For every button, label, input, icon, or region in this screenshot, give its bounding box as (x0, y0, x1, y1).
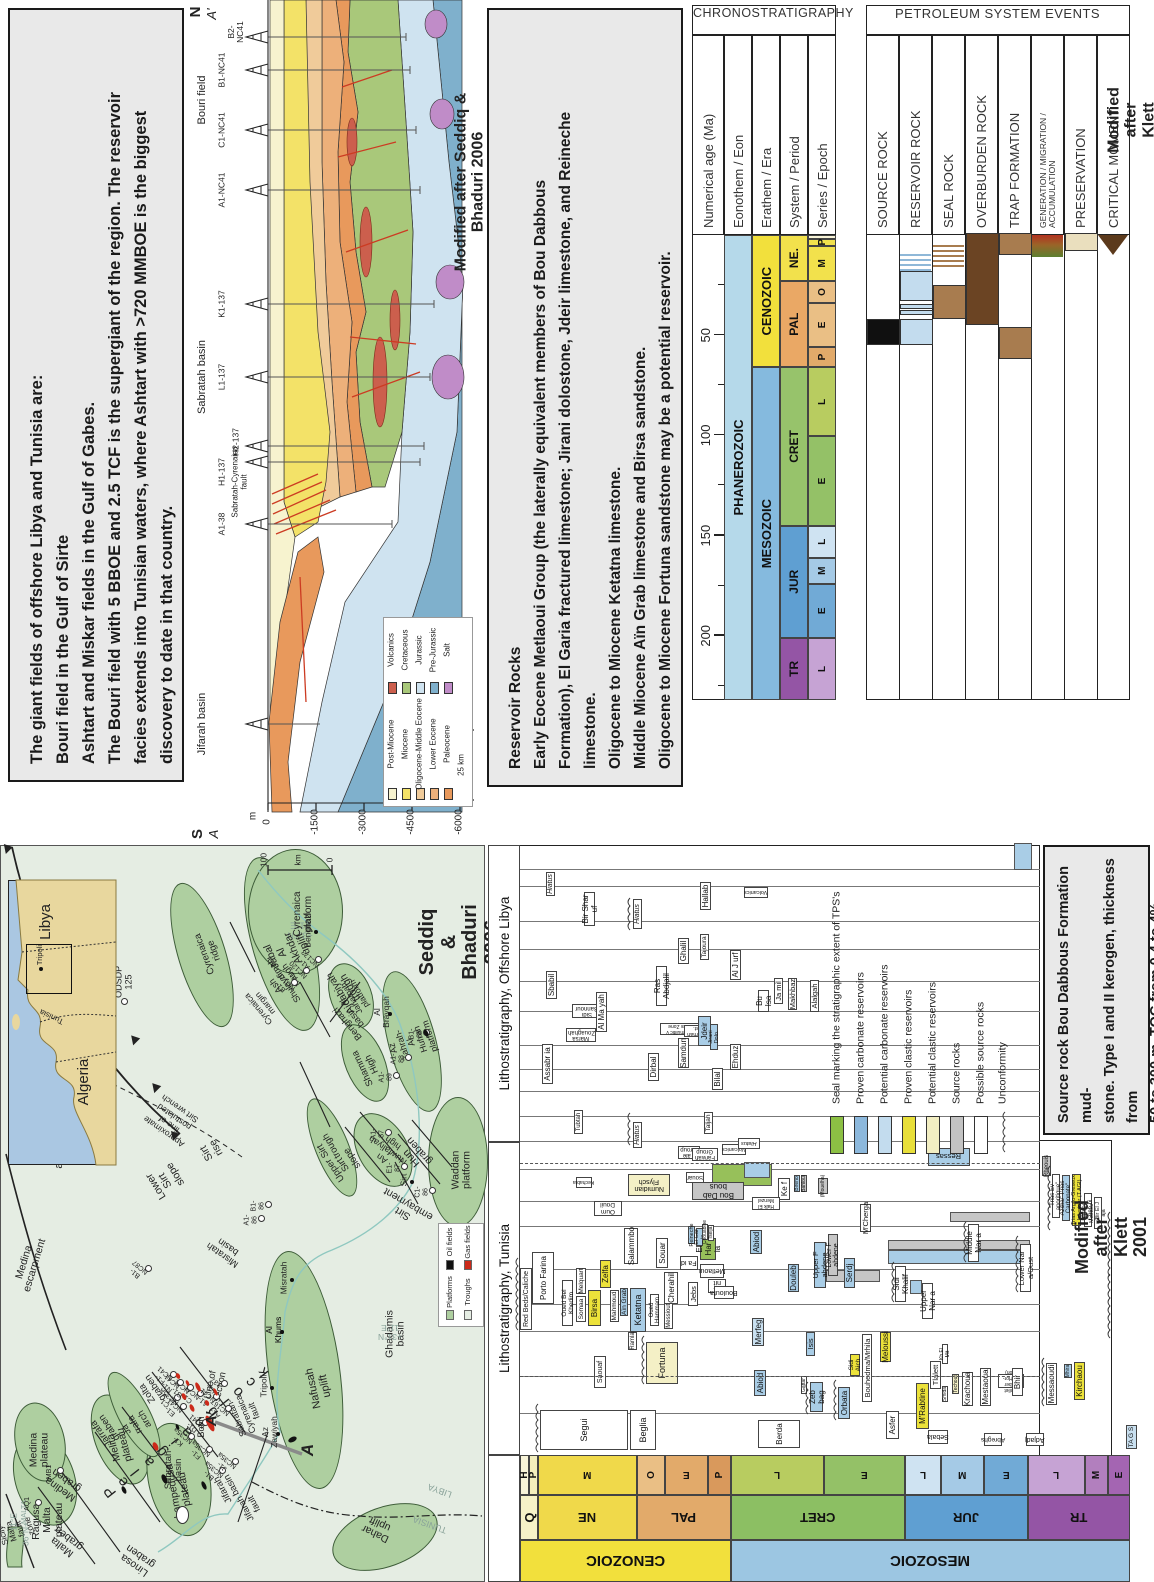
south-label: S (190, 829, 206, 839)
chrono-band: MESOZOIC (752, 367, 780, 700)
chrono-band: O (808, 281, 836, 303)
well-marker (35, 1499, 42, 1506)
event-row-label: SEAL ROCK (932, 35, 965, 235)
legend-label: Miocene (402, 729, 411, 759)
section-A-label: A (207, 830, 221, 839)
event-row-label: SOURCE ROCK (866, 35, 899, 235)
chrono-band: E (808, 436, 836, 525)
litho-legend-chip (950, 1116, 964, 1154)
event-bar (933, 285, 966, 319)
north-label: N (188, 7, 204, 18)
age-minor-tick (718, 384, 724, 385)
litho-legend-chip (854, 1116, 868, 1154)
event-bar-stripes (933, 245, 964, 267)
basin-label: Bouri field (197, 76, 209, 125)
text-line: Formation), El Garia fractured limestone… (553, 26, 578, 769)
event-bar-gradient (1032, 235, 1063, 257)
row-line (1031, 235, 1032, 700)
well-marker (429, 1187, 436, 1194)
age-tick-label: 50 (699, 328, 713, 342)
map-legend-chip (464, 1260, 472, 1270)
city-dot (270, 1386, 274, 1390)
map-label: Waddan platform (451, 1151, 474, 1190)
city-label: Tripoli (259, 1375, 268, 1398)
litho-legend-label: Potential clastic reservoirs (927, 982, 938, 1104)
event-bar (966, 233, 999, 325)
map-well-label: A1-87 (370, 1129, 385, 1140)
dsdp-site-marker (121, 998, 128, 1005)
critical-moment-triangle (1098, 235, 1128, 255)
litho-legend-label: Unconformity (997, 1042, 1008, 1104)
row-line (1097, 235, 1098, 700)
events-banner: PETROLEUM SYSTEM EVENTS (866, 5, 1130, 35)
text-line: Middle Miocene Aïn Grab limestone and Bi… (628, 26, 653, 769)
well-marker (57, 1467, 64, 1474)
age-tick (714, 434, 724, 436)
map-well-label: E1-87 (386, 1163, 401, 1174)
litho-legend-chip (830, 1116, 844, 1154)
legend-label: Jurassic (416, 635, 425, 664)
city-label: Misratah (279, 1262, 288, 1295)
well-label: C1-NC41 (217, 112, 226, 147)
city-label: Sirt (399, 1174, 408, 1187)
well-label: A1-NC41 (217, 173, 226, 208)
basin-label: Sabratah basin (197, 340, 209, 414)
event-bar-stripes (900, 253, 931, 271)
chrono-band: CENOZOIC (752, 235, 780, 367)
event-row-label: GENERATION / MIGRATION / ACCUMULATION (1031, 35, 1064, 235)
chrono-band: L (808, 638, 836, 700)
map-well-label: A1-86 (243, 1215, 258, 1226)
legend-label: Pre-Jurassic (430, 628, 439, 672)
legend-label: Cretaceous (402, 630, 411, 671)
map-legend-chip (446, 1310, 454, 1320)
depth-tick-label: -4500 (407, 809, 418, 835)
event-bar (900, 271, 933, 301)
well-label: B2-NC41 (227, 16, 245, 48)
litho-legend-label: Source rocks (951, 1043, 962, 1104)
legend-chip (430, 682, 439, 694)
litho-legend-label: Seal marking the stratigraphic extent of… (831, 892, 842, 1105)
chrono-row-label: Series / Epoch (808, 35, 836, 235)
map-label: Medina plateau (29, 1433, 52, 1467)
map-well-label: B1-86 (250, 1201, 265, 1212)
text-line: Early Eocene Metlaoui Group (the lateral… (528, 26, 553, 769)
chrono-band: E (808, 303, 836, 347)
chrono-band: M (808, 558, 836, 584)
reservoir-rocks-textbox: Reservoir RocksEarly Eocene Metlaoui Gro… (487, 8, 683, 787)
city-label: Benghazi (303, 912, 312, 947)
text-line: stone. Type I and II kerogen, thickness … (1099, 857, 1145, 1123)
chrono-band: CRET (780, 367, 808, 525)
scale-unit: km (293, 854, 302, 865)
legend-label: Volcanics (388, 633, 397, 667)
event-row-label: OVERBURDEN ROCK (965, 35, 998, 235)
text-line: 50 to 300 m. TOC from 0.4 to 4%, (1145, 857, 1154, 1123)
well-marker (258, 1215, 265, 1222)
map-well-label: A1-89 (378, 1072, 393, 1083)
legend-label: Salt (444, 643, 453, 657)
map-well-label: A1-88 (390, 1054, 405, 1065)
depth-unit: m (249, 812, 260, 820)
city-dot (290, 1278, 294, 1282)
chrono-row-label: Numerical age (Ma) (692, 35, 724, 235)
age-tick-label: 200 (699, 625, 713, 647)
legend-label: Post-Miocene (388, 720, 397, 769)
reservoir-title: Reservoir Rocks (503, 26, 528, 769)
age-tick (714, 634, 724, 636)
depth-tick-label: -3000 (359, 809, 370, 835)
island-shape (176, 1506, 189, 1524)
chrono-band: PHANEROZOIC (724, 235, 752, 700)
basin-label: Jifarah basin (197, 693, 209, 755)
event-row-label: PRESERVATION (1064, 35, 1097, 235)
litho-legend-chip (878, 1116, 892, 1154)
scale-100: 100 (259, 853, 268, 867)
map-legend-label: Gas fields (464, 1225, 472, 1258)
legend-label: Oligocene-Middle Eocene (416, 698, 425, 790)
age-tick (714, 534, 724, 536)
well-label: H1-137 (217, 458, 226, 486)
chrono-banner: CHRONOSTRATIGRAPHY (692, 5, 836, 35)
map-legend-label: Oil fields (446, 1228, 454, 1257)
litho-legend-chip (974, 1116, 988, 1154)
fault-label: Sabratah-Cyrenaica fault (231, 446, 248, 517)
litho-dashed-line (520, 1376, 1040, 1377)
map-legend-label: Troughs (464, 1278, 472, 1305)
city-label: Al Brayqah (373, 996, 391, 1028)
reservoir-rocks-text: Reservoir RocksEarly Eocene Metlaoui Gro… (489, 10, 692, 785)
well-label: K1-137 (217, 290, 226, 317)
source-rock-textbox: Source rock Bou Dabbous Formation mud-st… (1043, 845, 1150, 1135)
chrono-band: E (808, 584, 836, 638)
rotated-poster-canvas: The giant fields of offshore Libya and T… (0, 0, 1154, 1582)
map-label: 36°N+ (21, 1522, 30, 1546)
well-marker (401, 1163, 408, 1170)
map-label: ODSDP 125 (114, 966, 133, 998)
litho-caption: Modified after Klett 2001 (1073, 1200, 1151, 1274)
scale-label: 25 km (458, 754, 467, 776)
inset-country-label: Libya (38, 904, 54, 940)
chrono-band: TR (780, 638, 808, 700)
litho-legend-chip (902, 1116, 916, 1154)
map-well-label: B1-88 (408, 1029, 423, 1040)
depth-tick-label: -6000 (455, 809, 466, 835)
well-marker (385, 1129, 392, 1136)
chrono-row-label: Eonothem / Eon (724, 35, 752, 235)
age-minor-tick (718, 485, 724, 486)
row-line (866, 235, 867, 700)
chrono-row-label: System / Period (780, 35, 808, 235)
age-minor-tick (718, 685, 724, 686)
scale-0: 0 (325, 858, 334, 863)
event-bar (999, 233, 1032, 255)
chrono-band: P (808, 347, 836, 367)
age-tick-label: 150 (699, 525, 713, 547)
litho-legend-label: Proven clastic reservoirs (903, 990, 914, 1104)
well-marker (265, 1201, 272, 1208)
legend-label: Lower Eocene (430, 718, 439, 769)
event-bar (1065, 233, 1098, 251)
age-minor-tick (718, 284, 724, 285)
well-marker (393, 1072, 400, 1079)
event-bar (867, 319, 900, 345)
row-line (1064, 235, 1065, 700)
age-tick-label: 100 (699, 425, 713, 447)
map-label: 11°E (9, 1513, 18, 1531)
well-marker (405, 1054, 412, 1061)
event-row-label: RESERVOIR ROCK (899, 35, 932, 235)
chrono-band: NE. (780, 235, 808, 281)
chrono-band: L (808, 367, 836, 436)
map-label: +31°N 11°E (378, 1323, 402, 1341)
city-dot (410, 1180, 414, 1184)
well-label: L1-137 (217, 364, 226, 390)
map-well-label: MB1 (46, 1465, 54, 1479)
source-rock-text: Source rock Bou Dabbous Formation mud-st… (1045, 847, 1154, 1133)
depth-tick-label: 0 (263, 819, 274, 825)
legend-chip (402, 682, 411, 694)
map-well-label: AQ1 (24, 1497, 32, 1511)
section-Aprime-label: A' (205, 8, 219, 19)
well-label: A1-38 (217, 513, 226, 536)
city-label: Az Zawiyah (261, 1416, 279, 1448)
age-tick (714, 334, 724, 336)
chrono-band: M (808, 246, 836, 281)
chrono-band: PAL (780, 281, 808, 367)
litho-legend-label: Possible source rocks (975, 1002, 986, 1104)
chrono-caption: Modified after Klett 2001 (1105, 87, 1154, 153)
map-label: Ragusa-Malta plateau (31, 1500, 65, 1540)
event-row-label: TRAP FORMATION (998, 35, 1031, 235)
city-label: Al Khums (265, 1317, 283, 1343)
screenshot-root: The giant fields of offshore Libya and T… (0, 0, 1154, 1582)
inset-study-area-rect (26, 944, 72, 994)
map-well-label: C1-86 (414, 1186, 429, 1197)
city-dot (314, 930, 318, 934)
litho-legend-label: Potential carbonate reservoirs (879, 965, 890, 1105)
chrono-band: L (808, 526, 836, 558)
map-section-Aprime: A' (204, 1412, 220, 1426)
section-caption: Modified after Seddiq & Bhaduri 2006 (453, 91, 488, 273)
depth-tick-label: -1500 (311, 809, 322, 835)
legend-chip (402, 788, 411, 800)
event-bar (900, 319, 933, 345)
inset-country-label: Algeria (76, 1059, 92, 1106)
text-line: Source rock Bou Dabbous Formation mud- (1053, 857, 1099, 1123)
litho-legend-chip (926, 1116, 940, 1154)
event-bar (900, 310, 933, 315)
chrono-band: P (808, 239, 836, 246)
text-line: Oligocene to Miocene Ketatna limestone. (603, 26, 628, 769)
legend-chip (388, 682, 397, 694)
legend-chip (444, 682, 453, 694)
map-legend-chip (464, 1310, 472, 1320)
litho-legend-label: Proven carbonate reservoirs (855, 972, 866, 1104)
age-minor-tick (718, 585, 724, 586)
text-line: limestone. (578, 26, 603, 769)
text-line: Oligocene to Miocene Fortuna sandstone m… (653, 26, 678, 769)
chrono-row-label: Erathem / Era (752, 35, 780, 235)
legend-chip (416, 682, 425, 694)
well-label: B1-NC41 (217, 53, 226, 88)
legend-chip (444, 788, 453, 800)
legend-label: Paleocene (444, 725, 453, 763)
event-bar (900, 304, 933, 309)
map-legend-label: Platforms (446, 1276, 454, 1308)
litho-dashed-line (520, 1163, 1040, 1164)
map-label: Sabratah basin (164, 1451, 185, 1490)
map-section-A: A (299, 1444, 317, 1456)
legend-chip (388, 788, 397, 800)
chrono-band: JUR (780, 526, 808, 638)
event-bar (999, 327, 1032, 359)
legend-chip (430, 788, 439, 800)
map-legend-chip (446, 1260, 454, 1270)
